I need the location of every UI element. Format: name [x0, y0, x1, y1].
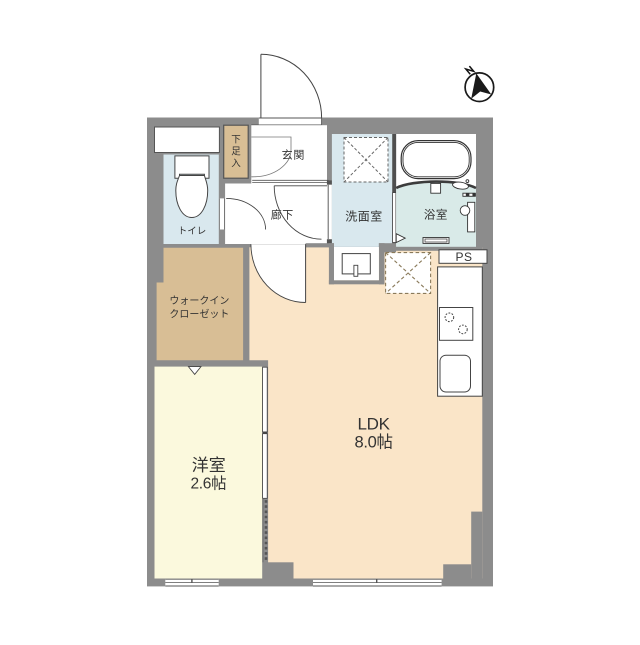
svg-text:洗面室: 洗面室 [345, 208, 383, 223]
svg-text:ウォークイン: ウォークイン [169, 295, 229, 307]
svg-text:クローゼット: クローゼット [169, 309, 229, 321]
svg-text:玄関: 玄関 [282, 147, 306, 161]
svg-text:入: 入 [231, 159, 241, 170]
svg-text:PS: PS [455, 250, 472, 264]
svg-text:8.0帖: 8.0帖 [354, 433, 392, 452]
svg-text:廊下: 廊下 [271, 208, 294, 222]
svg-text:浴室: 浴室 [424, 207, 448, 221]
svg-text:トイレ: トイレ [178, 226, 207, 237]
svg-text:洋室: 洋室 [192, 456, 226, 475]
svg-text:足: 足 [231, 147, 241, 158]
svg-text:LDK: LDK [358, 414, 391, 433]
svg-text:下: 下 [231, 135, 241, 146]
svg-text:2.6帖: 2.6帖 [190, 474, 226, 492]
